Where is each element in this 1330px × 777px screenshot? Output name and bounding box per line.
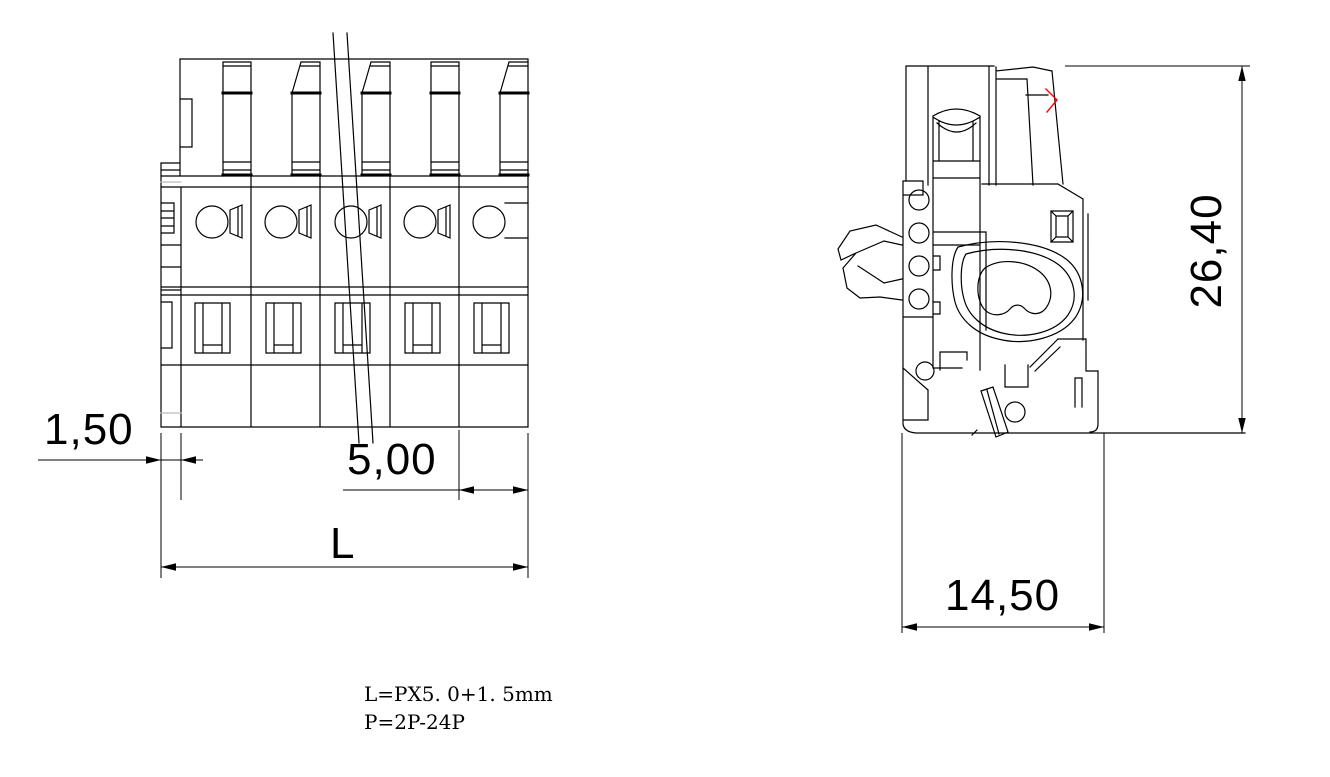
dimension-arrow xyxy=(459,486,474,494)
dimension-label-edge-offset: 1,50 xyxy=(44,408,134,452)
front-view-faint-lines xyxy=(161,182,181,413)
front-view xyxy=(161,33,528,443)
dimension-arrow xyxy=(1089,623,1104,631)
dimension-arrow xyxy=(513,563,528,571)
side-hole xyxy=(909,256,929,276)
dimension-arrow xyxy=(1238,66,1245,81)
front-view-body-lines xyxy=(161,59,528,427)
side-hole xyxy=(909,190,929,210)
dimension-label-total-length: L xyxy=(330,522,355,566)
cad-drawing-sheet: 1,50 5,00 L 26,40 14,50 L=PX5. 0+1. 5mm … xyxy=(0,0,1330,777)
side-view-snap-clip xyxy=(838,225,902,300)
wire-hole xyxy=(473,206,505,238)
dimension-label-height: 26,40 xyxy=(1185,193,1229,308)
note-pole-range: P=2P-24P xyxy=(364,712,465,732)
dimension-arrow xyxy=(513,486,528,494)
side-hole xyxy=(909,289,929,309)
dimension-arrowheads xyxy=(146,66,1246,631)
dimension-label-pitch: 5,00 xyxy=(347,438,437,482)
dimension-arrow xyxy=(181,456,196,464)
dimension-arrow xyxy=(902,623,917,631)
dimension-annotations xyxy=(38,66,1250,633)
side-view-dimension-lines xyxy=(902,66,1250,633)
dimension-label-depth: 14,50 xyxy=(945,574,1060,618)
front-view-lever-thick-lines xyxy=(223,93,528,175)
wire-hole xyxy=(404,206,436,238)
drawing-canvas xyxy=(0,0,1330,777)
dimension-arrow xyxy=(1238,418,1245,433)
front-view-release-slots xyxy=(230,203,528,238)
wire-hole xyxy=(265,206,297,238)
wire-hole xyxy=(335,206,367,238)
side-hole xyxy=(909,223,929,243)
side-view-clamp-spring xyxy=(952,242,1083,342)
note-length-formula: L=PX5. 0+1. 5mm xyxy=(364,684,553,704)
dimension-arrow xyxy=(161,563,176,571)
dimension-arrow xyxy=(146,456,161,464)
front-view-lever-lines xyxy=(223,62,528,176)
wire-hole xyxy=(196,206,228,238)
side-hole xyxy=(916,362,934,380)
side-hole xyxy=(1005,402,1025,422)
